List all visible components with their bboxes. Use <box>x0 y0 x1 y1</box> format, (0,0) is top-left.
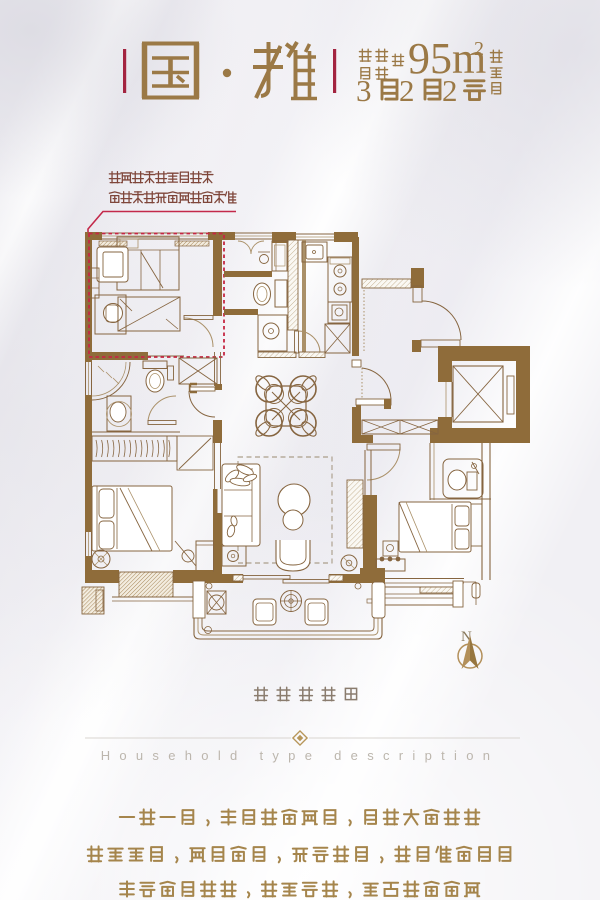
svg-text:3: 3 <box>356 73 372 108</box>
svg-text:Household type description: Household type description <box>101 748 500 763</box>
svg-text:2: 2 <box>399 73 415 108</box>
svg-text:2: 2 <box>474 38 484 60</box>
svg-text:2: 2 <box>442 73 458 108</box>
